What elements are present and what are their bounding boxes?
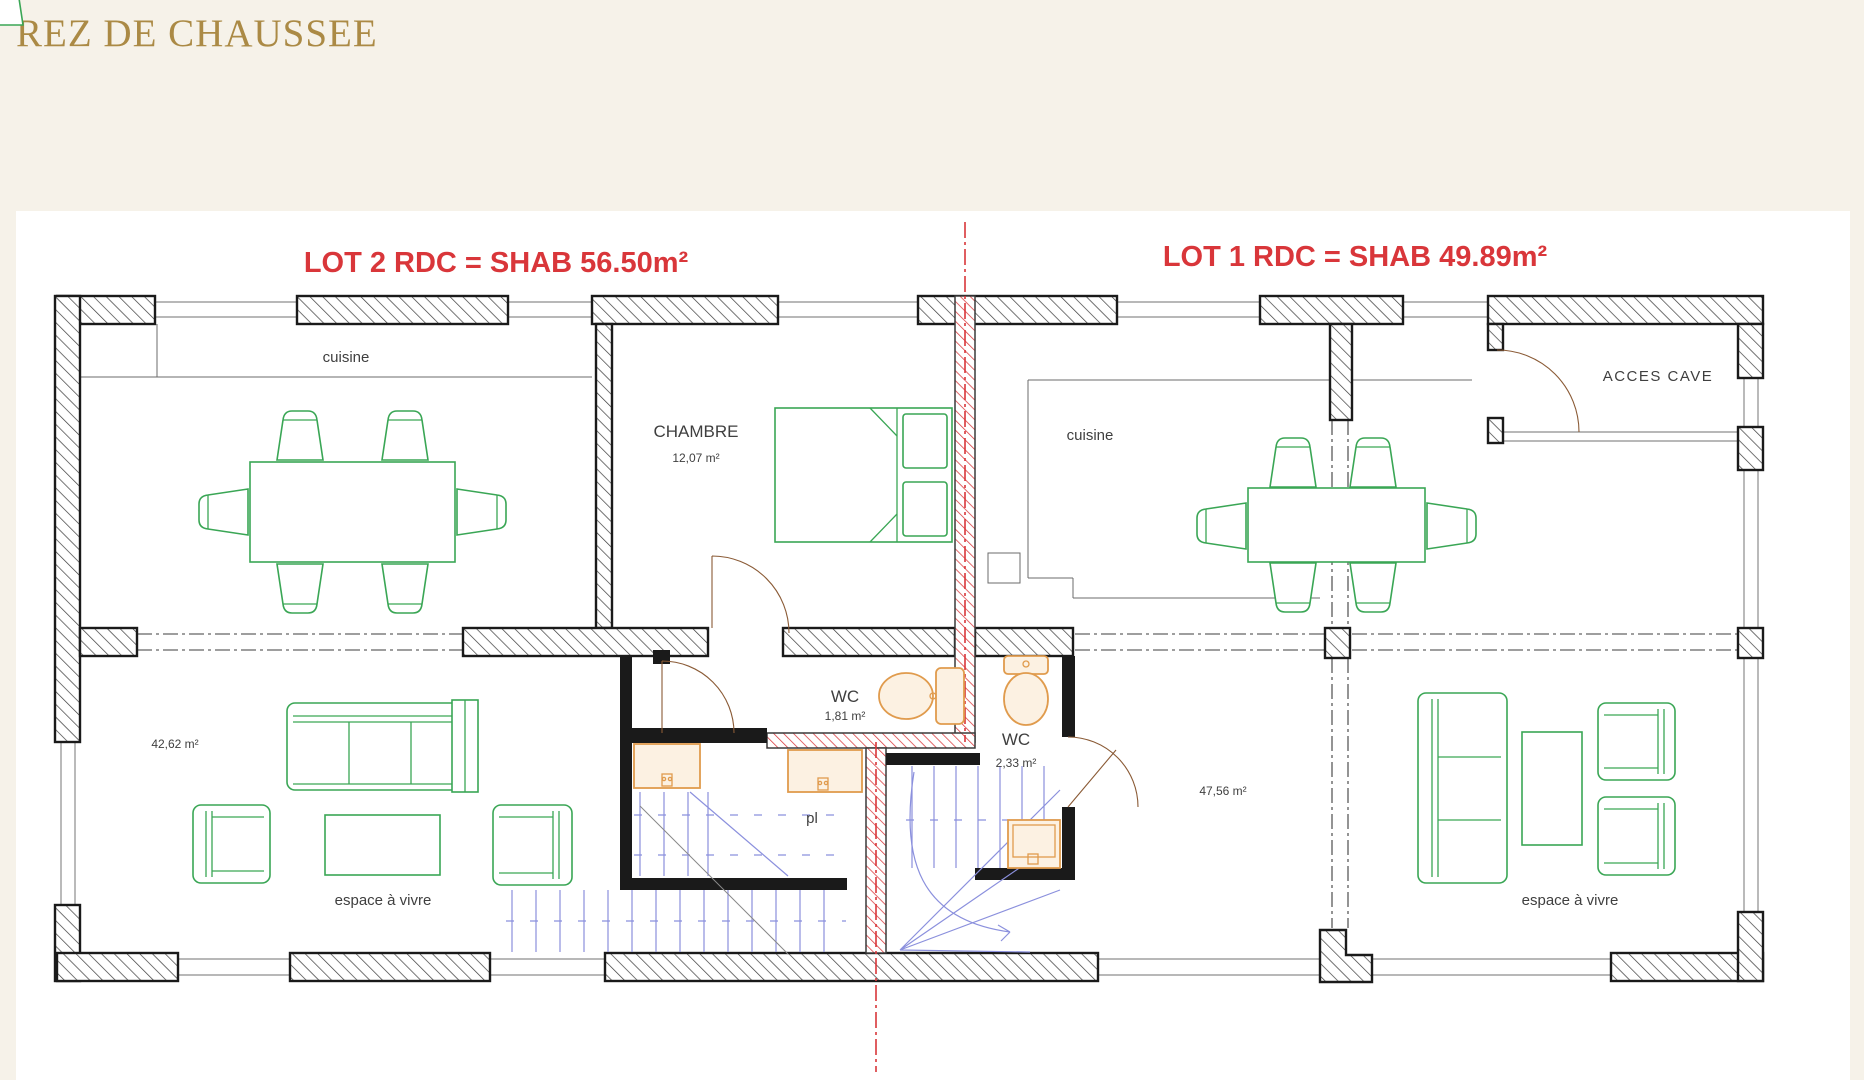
area-chambre: 12,07 m² xyxy=(672,451,719,465)
label-lot1-living: espace à vivre xyxy=(1522,892,1619,909)
side-unit xyxy=(452,700,478,792)
wc2-toilet-icon xyxy=(1004,656,1048,725)
pier xyxy=(80,628,137,656)
armchair xyxy=(1598,797,1675,875)
label-placard: pl xyxy=(806,810,818,827)
door-jamb xyxy=(1488,324,1503,350)
floor-plan-page: REZ DE CHAUSSEE LOT 2 RDC = SHAB 56.50m²… xyxy=(0,0,1864,1080)
area-lot2-living: 42,62 m² xyxy=(151,737,198,751)
label-chambre: CHAMBRE xyxy=(653,422,738,441)
area-lot1-living: 47,56 m² xyxy=(1199,784,1246,798)
label-wc2: WC xyxy=(1002,730,1030,749)
lot1-label: LOT 1 RDC = SHAB 49.89m² xyxy=(1163,241,1548,273)
coffee-table xyxy=(1522,732,1582,845)
wc2-sink-icon xyxy=(1008,820,1060,868)
coffee-table xyxy=(325,815,440,875)
vanity-sink-icon xyxy=(634,744,700,788)
label-cuisine-lot2: cuisine xyxy=(323,349,370,366)
sofa-lot1 xyxy=(1418,693,1507,883)
wall-stub xyxy=(1330,324,1352,420)
page-title: REZ DE CHAUSSEE xyxy=(16,12,378,55)
label-cuisine-lot1: cuisine xyxy=(1067,427,1114,444)
chambre-wall xyxy=(596,324,612,628)
armchair xyxy=(493,805,572,885)
armchair xyxy=(1598,703,1675,780)
vanity-sink-icon xyxy=(788,750,862,792)
door-jamb xyxy=(1488,418,1503,443)
bed xyxy=(775,408,952,542)
label-wc1: WC xyxy=(831,687,859,706)
label-lot2-living: espace à vivre xyxy=(335,892,432,909)
pillow xyxy=(903,414,947,468)
label-acces-cave: ACCES CAVE xyxy=(1603,368,1714,385)
chair xyxy=(0,0,23,25)
lot2-label: LOT 2 RDC = SHAB 56.50m² xyxy=(304,247,689,279)
area-wc1: 1,81 m² xyxy=(825,709,866,723)
wc1-toilet-icon xyxy=(879,668,964,724)
sofa-lot2 xyxy=(287,703,477,790)
area-wc2: 2,33 m² xyxy=(996,756,1037,770)
armchair xyxy=(193,805,270,883)
pillow xyxy=(903,482,947,536)
pier xyxy=(1325,628,1350,658)
